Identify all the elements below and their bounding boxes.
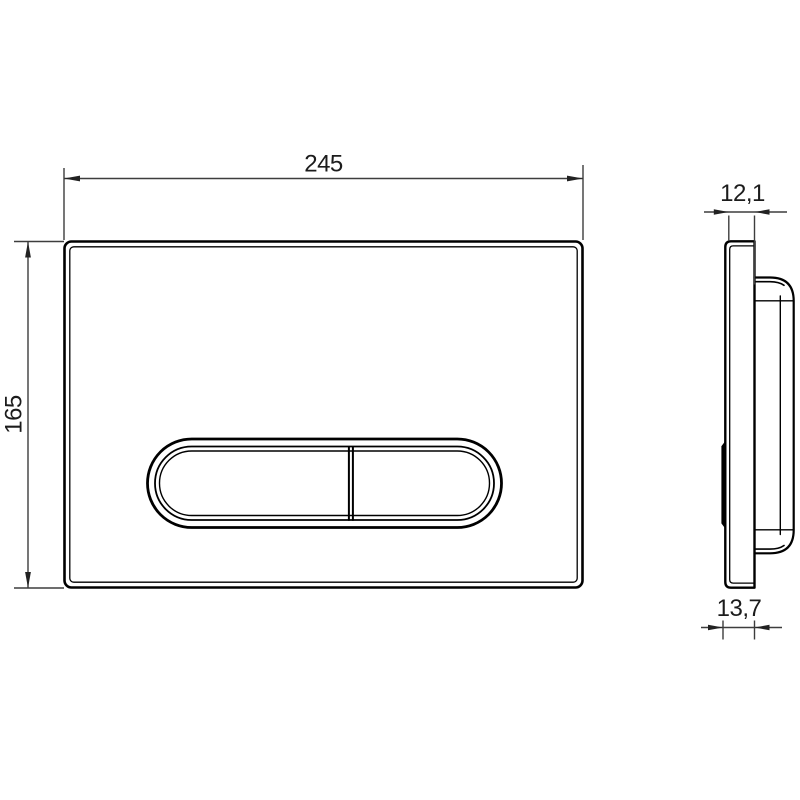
thickness-bottom-extension-lines [723, 621, 755, 640]
rear-frame-top-inner-line [755, 282, 785, 286]
thickness-bottom-label: 13,7 [717, 595, 762, 622]
dimension-thickness-bottom: 13,7 [701, 595, 782, 640]
dimension-width: 245 [64, 151, 583, 241]
front-view [65, 242, 583, 588]
side-button-profile [721, 441, 725, 529]
dimension-height: 165 [1, 242, 65, 589]
thickness-top-extension-lines [729, 216, 755, 285]
height-arrowhead-top [25, 242, 31, 258]
flush-plate-technical-drawing: 245 165 [0, 0, 800, 800]
dimension-thickness-top: 12,1 [704, 180, 787, 285]
technical-drawing-page: 245 165 [0, 0, 800, 800]
thickness-bottom-arrowhead-left [708, 625, 723, 630]
height-dimension-label: 165 [1, 395, 28, 434]
thickness-top-arrowhead-left [714, 209, 729, 214]
flush-button-outline-middle [155, 447, 494, 521]
side-plate-outline-inner [730, 246, 755, 583]
plate-outline-outer [65, 242, 583, 588]
flush-button-outline-inner [160, 451, 490, 516]
width-arrowhead-left [64, 176, 80, 182]
height-arrowhead-bottom [25, 572, 31, 588]
side-view [721, 241, 793, 587]
rear-frame-outline [755, 278, 794, 554]
width-dimension-label: 245 [304, 151, 343, 178]
plate-outline-inner [70, 247, 577, 582]
flush-button-outline-outer [148, 439, 502, 528]
thickness-top-label: 12,1 [720, 180, 765, 207]
rear-frame-bottom-inner-line [755, 546, 785, 550]
thickness-bottom-arrowhead-right [755, 625, 770, 630]
width-arrowhead-right [567, 176, 583, 182]
thickness-top-arrowhead-right [755, 209, 770, 214]
